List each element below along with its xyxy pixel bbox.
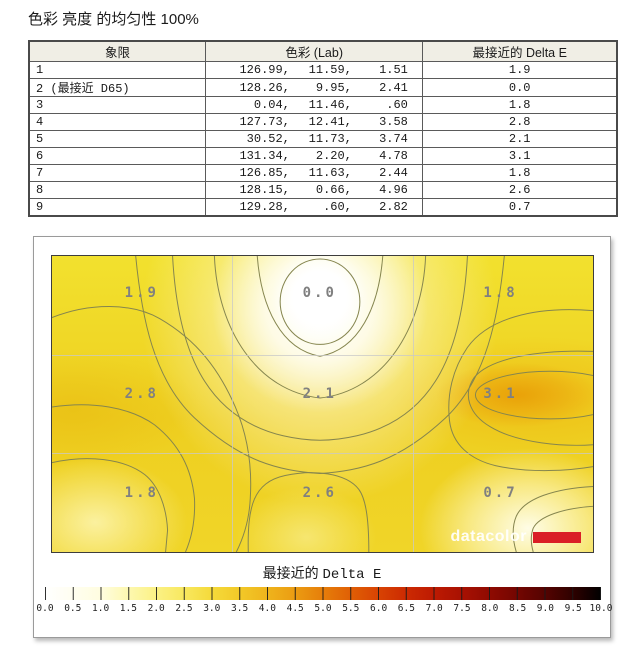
delta-e-cell: 2.6 <box>423 182 617 199</box>
quadrant-cell: 3 <box>29 97 205 114</box>
table-row: 2 (最接近 D65) 128.26,9.95,2.41 0.0 <box>29 79 617 97</box>
tick-label: 6.0 <box>370 603 387 614</box>
tick-label: 4.0 <box>259 603 276 614</box>
colorbar-title: 最接近的 Delta E <box>34 563 610 583</box>
cell-value-label: 0.7 <box>483 485 517 501</box>
grid-line-horizontal <box>52 355 593 356</box>
contour-map: 1.9 0.0 1.8 2.8 2.1 3.1 1.8 2.6 0.7 data… <box>51 255 594 553</box>
quadrant-cell: 9 <box>29 199 205 216</box>
cell-value-label: 2.1 <box>303 386 337 402</box>
tick-label: 0.0 <box>36 603 53 614</box>
table-row: 3 0.04,11.46,.60 1.8 <box>29 97 617 114</box>
delta-e-cell: 0.7 <box>423 199 617 216</box>
tick-label: 5.5 <box>342 603 359 614</box>
uniformity-report-page: 色彩 亮度 的均匀性 100% 象限 色彩 (Lab) 最接近的 Delta E… <box>0 0 640 649</box>
quadrant-cell: 8 <box>29 182 205 199</box>
table-row: 4 127.73,12.41,3.58 2.8 <box>29 114 617 131</box>
datacolor-logo-red-block <box>533 532 581 543</box>
quadrant-cell: 1 <box>29 62 205 79</box>
tick-label: 3.5 <box>231 603 248 614</box>
uniformity-table: 象限 色彩 (Lab) 最接近的 Delta E 1 126.99,11.59,… <box>28 40 618 217</box>
quadrant-cell: 5 <box>29 131 205 148</box>
quadrant-cell: 6 <box>29 148 205 165</box>
delta-e-cell: 1.8 <box>423 165 617 182</box>
colorbar-tick-labels: 0.0 0.5 1.0 1.5 2.0 2.5 3.0 3.5 4.0 4.5 … <box>45 603 601 617</box>
lab-cell: 131.34,2.20,4.78 <box>205 148 423 165</box>
tick-label: 8.5 <box>509 603 526 614</box>
delta-e-cell: 0.0 <box>423 79 617 97</box>
delta-e-cell: 3.1 <box>423 148 617 165</box>
quadrant-cell: 4 <box>29 114 205 131</box>
table-row: 6 131.34,2.20,4.78 3.1 <box>29 148 617 165</box>
delta-e-cell: 1.8 <box>423 97 617 114</box>
cell-value-label: 1.9 <box>125 285 159 301</box>
cell-value-label: 2.6 <box>303 485 337 501</box>
table-row: 7 126.85,11.63,2.44 1.8 <box>29 165 617 182</box>
table-row: 9 129.28,.60,2.82 0.7 <box>29 199 617 216</box>
lab-cell: 127.73,12.41,3.58 <box>205 114 423 131</box>
grid-line-vertical <box>413 256 414 552</box>
table-header-row: 象限 色彩 (Lab) 最接近的 Delta E <box>29 41 617 62</box>
col-header-delta-e: 最接近的 Delta E <box>423 41 617 62</box>
lab-cell: 128.26,9.95,2.41 <box>205 79 423 97</box>
colorbar-ticks <box>45 587 601 600</box>
tick-label: 1.5 <box>120 603 137 614</box>
lab-cell: 126.85,11.63,2.44 <box>205 165 423 182</box>
table-row: 8 128.15,0.66,4.96 2.6 <box>29 182 617 199</box>
page-title: 色彩 亮度 的均匀性 100% <box>28 8 199 29</box>
tick-label: 2.0 <box>148 603 165 614</box>
lab-cell: 129.28,.60,2.82 <box>205 199 423 216</box>
tick-label: 4.5 <box>287 603 304 614</box>
cell-value-label: 3.1 <box>483 386 517 402</box>
colorbar-gradient <box>45 587 601 600</box>
tick-label: 6.5 <box>398 603 415 614</box>
tick-label: 2.5 <box>175 603 192 614</box>
delta-e-cell: 1.9 <box>423 62 617 79</box>
table-row: 5 30.52,11.73,3.74 2.1 <box>29 131 617 148</box>
tick-label: 7.0 <box>426 603 443 614</box>
datacolor-logo-text: datacolor <box>450 528 527 546</box>
col-header-lab: 色彩 (Lab) <box>205 41 423 62</box>
cell-value-label: 0.0 <box>303 285 337 301</box>
datacolor-logo: datacolor <box>450 528 581 546</box>
tick-label: 9.5 <box>565 603 582 614</box>
tick-label: 0.5 <box>64 603 81 614</box>
grid-line-vertical <box>232 256 233 552</box>
tick-label: 9.0 <box>537 603 554 614</box>
cell-value-label: 1.8 <box>125 485 159 501</box>
quadrant-cell: 2 (最接近 D65) <box>29 79 205 97</box>
uniformity-chart-panel: 1.9 0.0 1.8 2.8 2.1 3.1 1.8 2.6 0.7 data… <box>33 236 611 638</box>
lab-cell: 128.15,0.66,4.96 <box>205 182 423 199</box>
quadrant-cell: 7 <box>29 165 205 182</box>
tick-label: 8.0 <box>481 603 498 614</box>
col-header-quadrant: 象限 <box>29 41 205 62</box>
lab-cell: 126.99,11.59,1.51 <box>205 62 423 79</box>
delta-e-cell: 2.1 <box>423 131 617 148</box>
tick-label: 7.5 <box>453 603 470 614</box>
tick-label: 3.0 <box>203 603 220 614</box>
lab-cell: 0.04,11.46,.60 <box>205 97 423 114</box>
cell-value-label: 2.8 <box>125 386 159 402</box>
colorbar: 0.0 0.5 1.0 1.5 2.0 2.5 3.0 3.5 4.0 4.5 … <box>45 587 601 617</box>
tick-label: 10.0 <box>590 603 613 614</box>
cell-value-label: 1.8 <box>483 285 517 301</box>
lab-cell: 30.52,11.73,3.74 <box>205 131 423 148</box>
tick-label: 1.0 <box>92 603 109 614</box>
grid-line-horizontal <box>52 453 593 454</box>
table-row: 1 126.99,11.59,1.51 1.9 <box>29 62 617 79</box>
tick-label: 5.0 <box>314 603 331 614</box>
delta-e-cell: 2.8 <box>423 114 617 131</box>
